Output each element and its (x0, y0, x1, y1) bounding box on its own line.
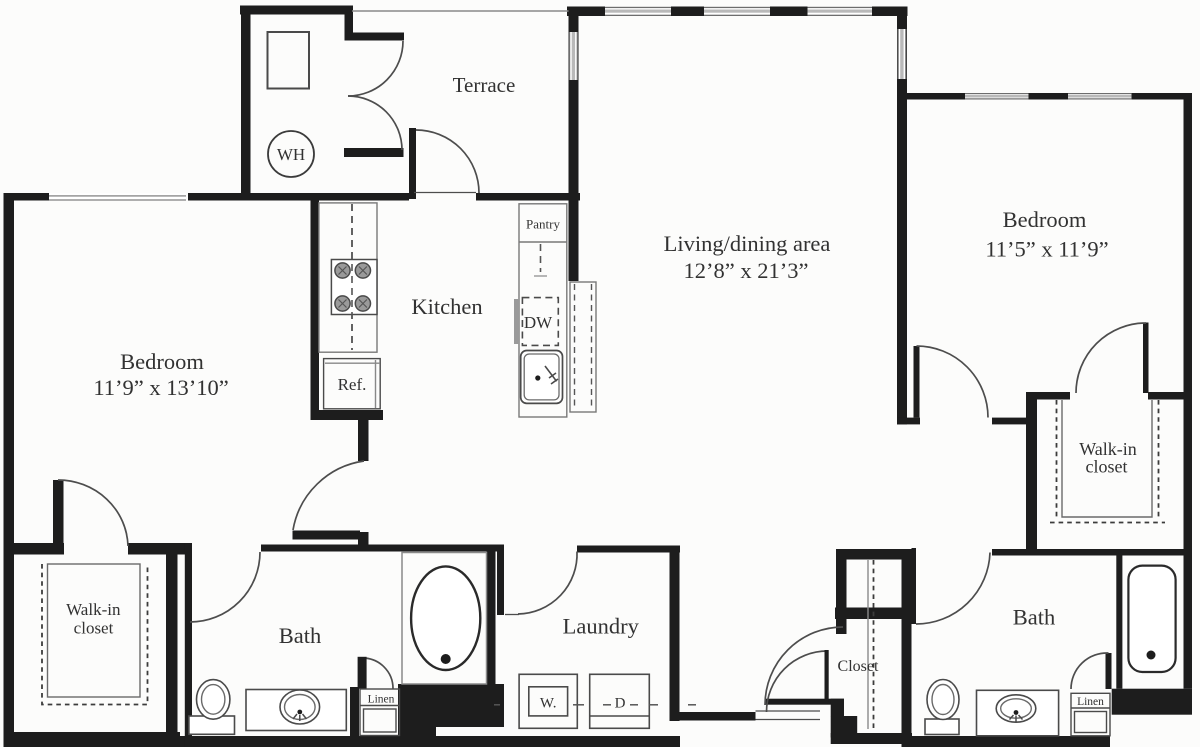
svg-text:Bedroom: Bedroom (120, 349, 204, 374)
svg-text:Pantry: Pantry (526, 217, 560, 232)
svg-text:Linen: Linen (1077, 696, 1104, 708)
svg-text:Laundry: Laundry (563, 614, 640, 639)
svg-text:Ref.: Ref. (338, 375, 367, 394)
svg-text:D: D (615, 696, 626, 712)
svg-text:DW: DW (524, 313, 553, 332)
svg-text:W.: W. (540, 696, 557, 712)
svg-text:WH: WH (277, 145, 305, 164)
svg-text:Bath: Bath (1013, 605, 1056, 630)
svg-text:Closet: Closet (838, 658, 879, 675)
svg-text:Bedroom: Bedroom (1003, 207, 1087, 232)
svg-text:Linen: Linen (368, 694, 395, 706)
svg-text:Living/dining area: Living/dining area (664, 231, 831, 256)
svg-text:closet: closet (1086, 457, 1128, 477)
svg-text:closet: closet (74, 619, 114, 638)
svg-text:Bath: Bath (279, 623, 322, 648)
svg-text:12’8” x 21’3”: 12’8” x 21’3” (684, 258, 809, 283)
svg-text:11’5” x 11’9”: 11’5” x 11’9” (985, 237, 1108, 262)
svg-text:Walk-in: Walk-in (66, 600, 121, 619)
svg-text:11’9” x 13’10”: 11’9” x 13’10” (93, 375, 228, 400)
svg-text:Terrace: Terrace (453, 73, 516, 97)
svg-text:Kitchen: Kitchen (411, 294, 482, 319)
